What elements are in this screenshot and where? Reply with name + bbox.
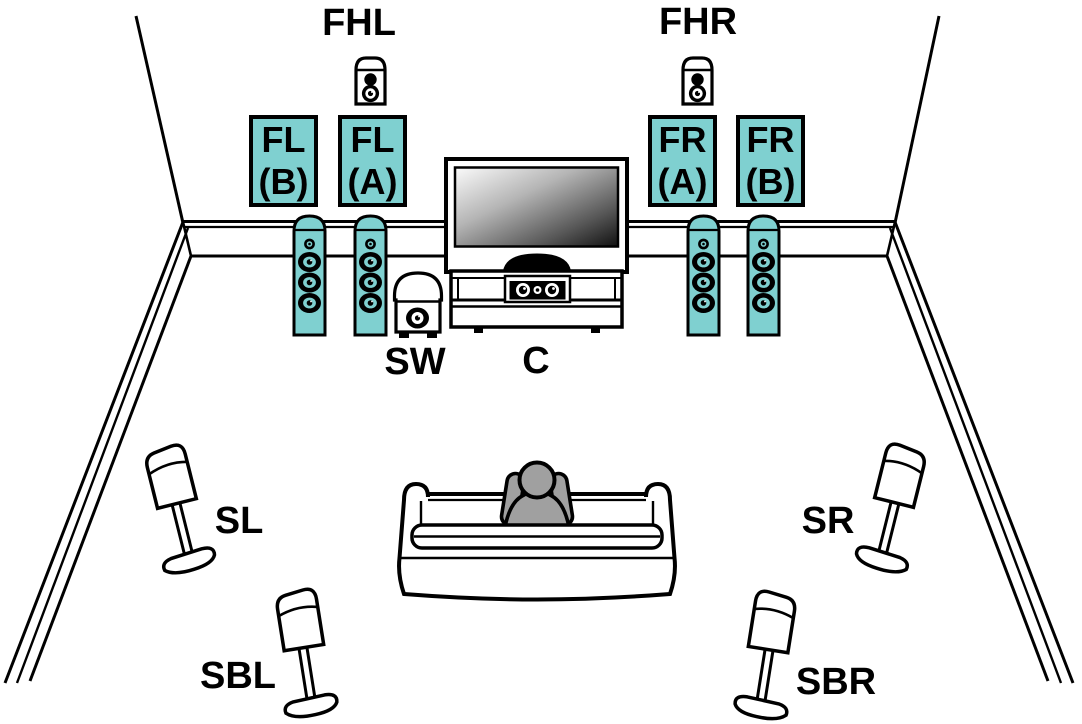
surround-right-speaker-icon bbox=[854, 441, 935, 575]
label-surround-back-right: SBR bbox=[796, 663, 876, 701]
front-right-a-line2: (A) bbox=[658, 161, 708, 203]
sofa-icon bbox=[399, 463, 675, 600]
surround-left-speaker-icon bbox=[136, 442, 217, 576]
label-surround-back-left: SBL bbox=[200, 657, 276, 695]
speaker-layout-diagram: FL (B) FL (A) FR (A) FR (B) FHL FHR SW C… bbox=[0, 0, 1082, 724]
front-right-b-line1: FR bbox=[747, 119, 795, 161]
front-right-a-line1: FR bbox=[659, 119, 707, 161]
front-right-tower-a-icon bbox=[688, 216, 719, 335]
surround-back-left-speaker-icon bbox=[267, 587, 339, 719]
listener-icon bbox=[500, 463, 573, 531]
front-left-b-box: FL (B) bbox=[249, 115, 318, 207]
front-left-tower-b-icon bbox=[294, 216, 325, 335]
tv-stand-icon bbox=[451, 271, 622, 333]
front-left-a-line1: FL bbox=[351, 119, 395, 161]
front-height-right-speaker-icon bbox=[683, 58, 712, 104]
label-surround-right: SR bbox=[802, 502, 855, 540]
front-left-b-line1: FL bbox=[262, 119, 306, 161]
tv-icon bbox=[446, 159, 627, 272]
front-height-left-speaker-icon bbox=[356, 58, 385, 104]
label-surround-left: SL bbox=[215, 502, 264, 540]
label-subwoofer: SW bbox=[384, 343, 445, 381]
center-speaker-icon bbox=[505, 276, 570, 302]
front-left-a-box: FL (A) bbox=[338, 115, 407, 207]
label-front-height-left: FHL bbox=[322, 4, 396, 42]
front-left-b-line2: (B) bbox=[259, 161, 309, 203]
subwoofer-icon bbox=[395, 273, 442, 338]
front-left-tower-a-icon bbox=[355, 216, 386, 335]
label-front-height-right: FHR bbox=[659, 3, 737, 41]
front-right-a-box: FR (A) bbox=[648, 115, 717, 207]
surround-back-right-speaker-icon bbox=[733, 589, 805, 721]
front-right-b-box: FR (B) bbox=[736, 115, 805, 207]
front-right-b-line2: (B) bbox=[746, 161, 796, 203]
label-center: C bbox=[522, 342, 549, 380]
front-left-a-line2: (A) bbox=[348, 161, 398, 203]
front-right-tower-b-icon bbox=[748, 216, 779, 335]
